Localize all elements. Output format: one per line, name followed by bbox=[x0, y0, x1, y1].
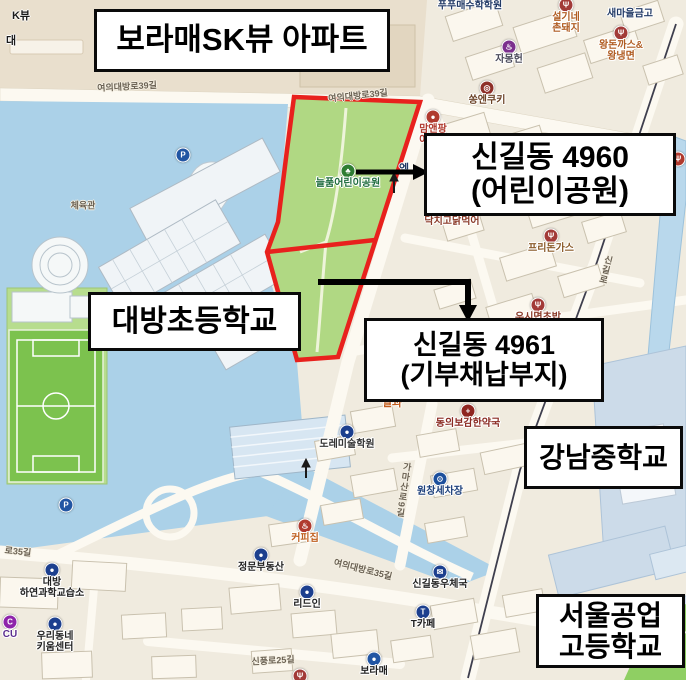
arrow-to-4960 bbox=[356, 164, 429, 180]
callout-high-school: 서울공업 고등학교 bbox=[536, 594, 685, 668]
callout-high-line1: 서울공업 bbox=[559, 600, 662, 631]
callout-elementary-school: 대방초등학교 bbox=[88, 292, 301, 351]
callout-elementary-text: 대방초등학교 bbox=[112, 305, 278, 339]
callout-apartment: 보라매SK뷰 아파트 bbox=[94, 9, 390, 72]
callout-apartment-text: 보라매SK뷰 아파트 bbox=[116, 23, 367, 58]
callout-middle-text: 강남중학교 bbox=[539, 442, 668, 473]
map-canvas[interactable]: 여의대방로39길여의대방로39길여의대방로35길로35길신풍로25길가마산로9길… bbox=[0, 0, 686, 680]
callout-high-line2: 고등학교 bbox=[559, 631, 662, 662]
callout-middle-school: 강남중학교 bbox=[524, 426, 683, 489]
arrow-to-4961 bbox=[318, 282, 477, 322]
callout-4960-line1: 신길동 4960 bbox=[471, 141, 629, 175]
callout-4960: 신길동 4960 (어린이공원) bbox=[424, 133, 676, 216]
callout-4961: 신길동 4961 (기부채납부지) bbox=[364, 318, 604, 402]
callout-4961-line2: (기부채납부지) bbox=[400, 360, 567, 390]
callout-4961-line1: 신길동 4961 bbox=[413, 330, 555, 360]
callout-4960-line2: (어린이공원) bbox=[471, 175, 629, 209]
